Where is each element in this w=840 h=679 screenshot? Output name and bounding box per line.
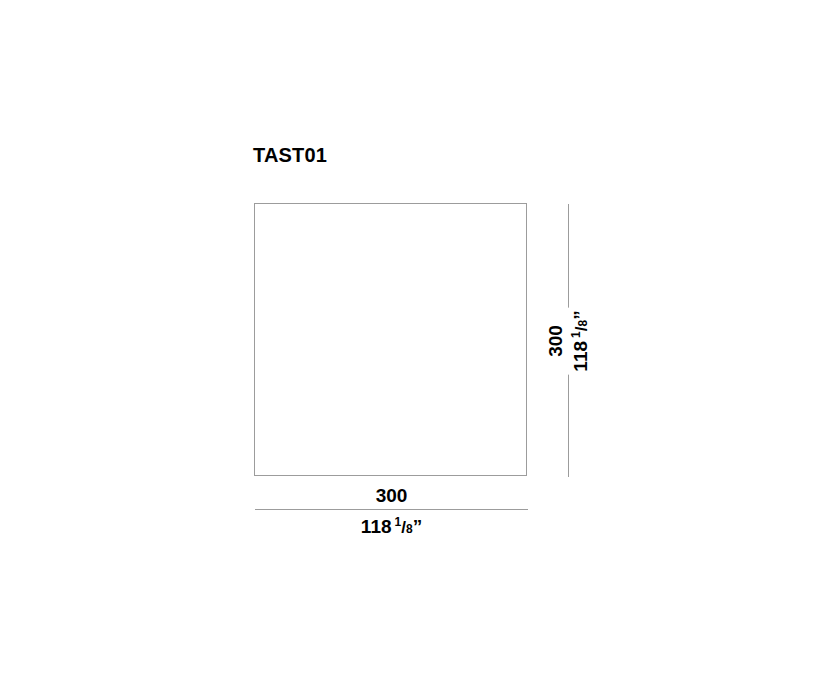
height-inch-frac-slash: / xyxy=(572,327,591,332)
width-dimension-label: 300 1181/8” xyxy=(255,486,528,539)
height-inch-frac-denominator: 8 xyxy=(576,320,590,327)
width-inch-whole: 118 xyxy=(361,516,392,537)
product-spec-sheet: TAST01 300 1181/8” 300 1181/8” xyxy=(0,0,840,679)
plan-view-square-outline xyxy=(254,203,527,476)
width-inch-frac-denominator: 8 xyxy=(406,522,413,536)
height-inch-value: 1181/8” xyxy=(566,310,593,371)
height-inch-frac-numerator: 1 xyxy=(569,331,583,338)
width-inch-unit-mark: ” xyxy=(413,516,423,537)
width-dimension-line xyxy=(255,509,528,510)
height-inch-unit-mark: ” xyxy=(570,310,591,320)
width-mm-value: 300 xyxy=(255,486,528,505)
height-mm-value: 300 xyxy=(546,325,566,357)
height-inch-whole: 118 xyxy=(570,341,591,372)
height-dimension-label: 300 1181/8” xyxy=(545,307,594,374)
width-inch-value: 1181/8” xyxy=(255,513,528,539)
product-code: TAST01 xyxy=(253,144,327,167)
